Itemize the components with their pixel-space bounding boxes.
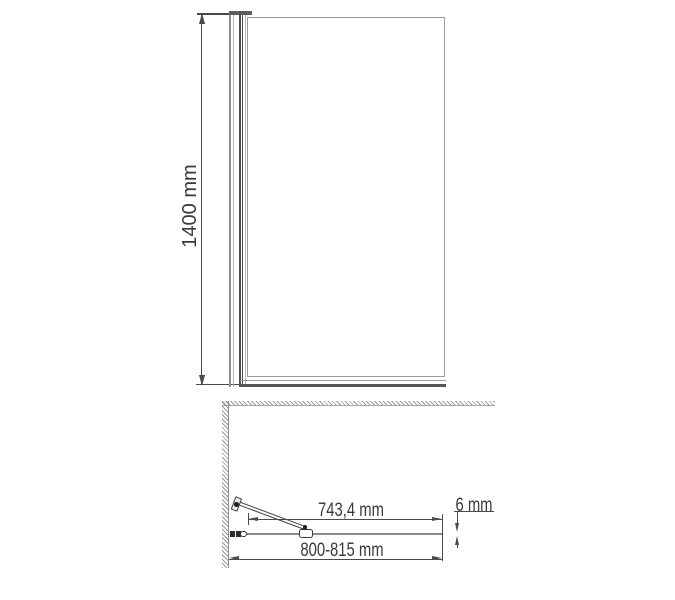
height-dimension-label: 1400 mm: [179, 151, 201, 261]
hinge-axis-line-right: [242, 12, 244, 387]
bar-reach-dimension-label: 743,4 mm: [304, 501, 398, 520]
arrowhead-right-icon: [432, 517, 442, 521]
glass-panel-plan: [246, 533, 442, 535]
wall-face-line-vertical: [228, 401, 229, 569]
dim-line-height: [201, 14, 202, 385]
glass-thickness-dimension-label: 6 mm: [455, 496, 494, 515]
arrowhead-down-icon: [455, 523, 459, 532]
glass-panel-front: [247, 17, 445, 377]
arrowhead-right-icon: [432, 556, 442, 560]
arrowhead-left-icon: [248, 517, 258, 521]
dim-ext-line-bottom: [196, 384, 242, 385]
dim-ext-line-right-shared: [442, 514, 443, 561]
arrowhead-left-icon: [229, 556, 239, 560]
hinge-axis-line-left: [239, 12, 241, 387]
pivot-hinge-circle: [240, 531, 247, 538]
profile-top-cap: [229, 11, 253, 15]
width-range-dimension-label: 800-815 mm: [295, 541, 389, 560]
dim-leader-vertical-bottom-6mm: [457, 543, 458, 548]
wall-face-line-horizontal: [222, 405, 495, 406]
glass-connector-block: [299, 529, 314, 537]
technical-drawing-canvas: 1400 mm 743,4 mm 800-815 mm 6 mm: [0, 0, 675, 600]
bottom-rail-bar: [240, 384, 446, 387]
wall-profile-outer-edge: [229, 12, 231, 387]
bottom-seal-line: [240, 380, 446, 382]
wall-profile-line: [233, 12, 234, 387]
profile-section-block-1: [230, 531, 236, 538]
bracket-screw: [234, 502, 239, 507]
wall-profile-inner-line: [245, 12, 246, 387]
arrowhead-up-icon: [199, 13, 205, 24]
